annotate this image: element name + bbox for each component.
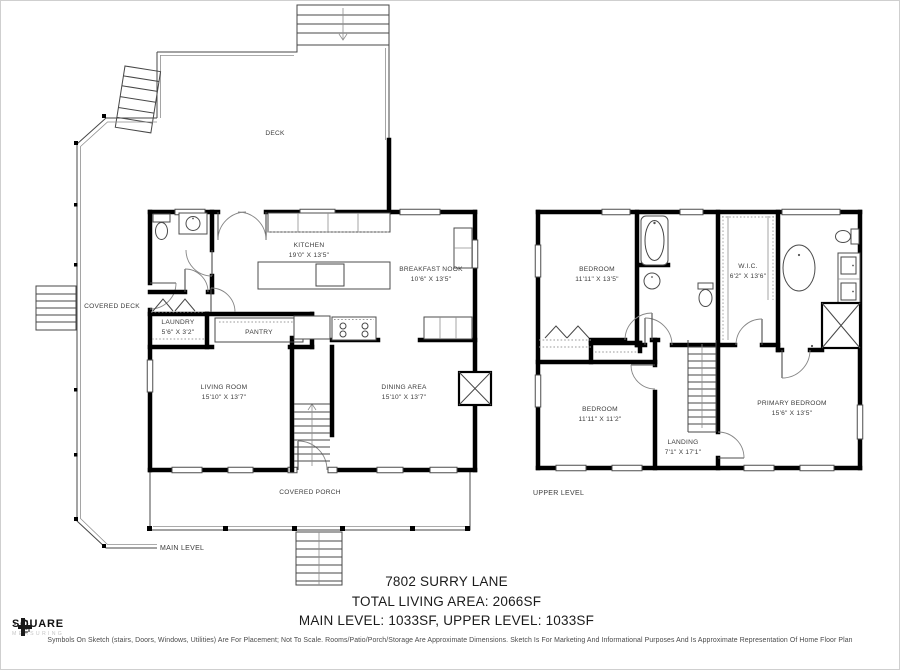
- primary-bath-door: [782, 350, 810, 378]
- primary-bedroom-dims: 15'6" X 13'5": [772, 410, 813, 417]
- dining-area-dims: 15'10" X 13'7": [382, 394, 427, 401]
- upper-level-label: UPPER LEVEL: [533, 490, 584, 497]
- main-level-label: MAIN LEVEL: [160, 545, 204, 552]
- laundry-label: LAUNDRY: [161, 319, 194, 326]
- primary-bedroom-door: [718, 432, 744, 458]
- landing-label: LANDING: [667, 439, 698, 446]
- dining-area-label: DINING AREA: [381, 384, 427, 391]
- bedroom1-label: BEDROOM: [579, 266, 615, 273]
- kitchen-dims: 19'0" X 13'5": [289, 252, 330, 259]
- bedroom2-label: BEDROOM: [582, 406, 618, 413]
- nook-cabinet: [454, 228, 472, 268]
- landing-dims: 7'1" X 17'1": [665, 449, 702, 456]
- toilet-icon: [153, 214, 170, 240]
- level-areas: MAIN LEVEL: 1033SF, UPPER LEVEL: 1033SF: [0, 611, 893, 631]
- main-staircase: [294, 404, 330, 466]
- sink-icon: [644, 273, 660, 289]
- wic-door: [736, 319, 762, 345]
- shower-icon: [811, 303, 860, 348]
- breakfast-nook-label: BREAKFAST NOOK: [399, 266, 463, 273]
- total-living-area: TOTAL LIVING AREA: 2066SF: [0, 592, 893, 612]
- living-room-dims: 15'10" X 13'7": [202, 394, 247, 401]
- deck: [157, 45, 389, 212]
- covered-deck-label: COVERED DECK: [84, 303, 140, 310]
- toilet-icon: [836, 229, 860, 244]
- double-vanity-icon: [838, 253, 860, 305]
- bedroom1-dims: 11'11" X 13'5": [575, 276, 619, 283]
- bathroom-door: [186, 250, 212, 276]
- disclaimer-text: Symbols On Sketch (stairs, Doors, Window…: [0, 637, 900, 644]
- primary-bedroom-label: PRIMARY BEDROOM: [757, 400, 826, 407]
- laundry-dims: 5'6" X 3'2": [162, 329, 195, 336]
- deck-stairs: [297, 5, 389, 45]
- kitchen-island: [258, 262, 390, 289]
- bathtub-icon: [641, 216, 668, 265]
- covered-porch: [147, 472, 470, 531]
- pantry-label: PANTRY: [245, 329, 273, 336]
- upper-staircase: [688, 340, 716, 432]
- oval-tub-icon: [783, 245, 815, 291]
- floor-plan-drawing: DECK COVERED DECK COVERED PORCH KITCHEN …: [0, 0, 900, 670]
- upper-interior-walls: [538, 212, 822, 468]
- covered-porch-label: COVERED PORCH: [279, 489, 341, 496]
- bedroom-closet-bifold: [539, 326, 591, 347]
- wic-dims: 6'2" X 13'6": [730, 273, 767, 280]
- wic-shelving: [722, 216, 774, 345]
- angled-stairs: [115, 66, 160, 133]
- main-level-plan: DECK COVERED DECK COVERED PORCH KITCHEN …: [36, 5, 491, 585]
- fireplace-icon: [459, 372, 491, 405]
- back-double-door: [218, 212, 266, 240]
- wic-label: W.I.C.: [738, 263, 757, 270]
- hall-door: [211, 288, 235, 312]
- front-door: [298, 441, 327, 470]
- logo: SQUARE MEASURING: [12, 618, 102, 637]
- upper-level-plan: BEDROOM 11'11" X 13'5" W.I.C. 6'2" X 13'…: [533, 209, 863, 497]
- counter-lower-left: [294, 316, 330, 339]
- toilet-icon: [698, 283, 713, 307]
- covered-deck: [74, 114, 157, 548]
- exterior-stairs: [36, 286, 76, 330]
- kitchen-counter: [268, 213, 390, 232]
- stove-icon: [332, 317, 376, 340]
- breakfast-nook-dims: 10'6" X 13'5": [411, 276, 452, 283]
- primary-bathroom: [782, 229, 860, 378]
- title-block: 7802 SURRY LANE TOTAL LIVING AREA: 2066S…: [0, 572, 893, 631]
- bedroom2-dims: 11'11" X 11'2": [579, 416, 622, 423]
- kitchen-label: KITCHEN: [294, 242, 325, 249]
- living-room-label: LIVING ROOM: [201, 384, 248, 391]
- main-interior-walls: [150, 212, 475, 470]
- main-bathroom: [153, 213, 207, 240]
- side-door: [150, 283, 176, 309]
- floor-plan-canvas: DECK COVERED DECK COVERED PORCH KITCHEN …: [0, 0, 900, 670]
- deck-label: DECK: [265, 130, 285, 137]
- bedroom2-door: [631, 365, 655, 389]
- sink-icon: [179, 213, 207, 234]
- counter-right: [424, 317, 472, 339]
- bath-hall-door: [185, 269, 208, 292]
- address: 7802 SURRY LANE: [0, 572, 893, 592]
